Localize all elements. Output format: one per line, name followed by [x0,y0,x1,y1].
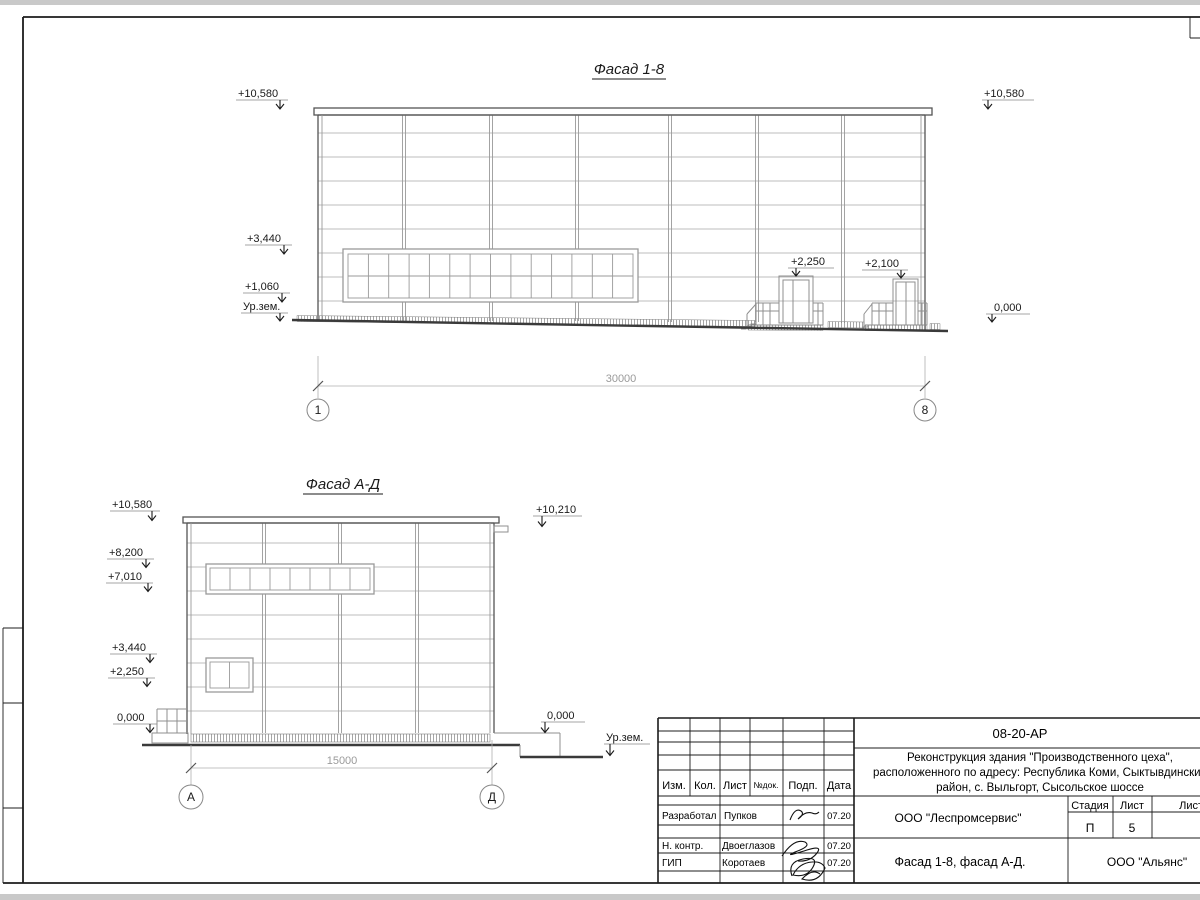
ground-line-1-8 [292,316,948,332]
organization-name: ООО "Леспромсервис" [895,811,1022,825]
level-text: +10,580 [238,88,278,100]
document-code: 08-20-АР [993,726,1048,741]
architectural-drawing: Фасад 1-8 [0,0,1200,900]
facade-1-8-window-band [343,249,638,302]
dimension-text: 15000 [327,755,358,767]
level-mark-0000-right-1-8: 0,000 [986,302,1030,322]
level-mark-ad-ground: Ур.зем. [604,732,650,756]
level-text: Ур.зем. [243,301,280,313]
axis-label-d: Д [488,790,496,804]
level-text: +2,100 [865,258,899,270]
signature-2 [782,841,819,861]
level-text: +2,250 [791,256,825,268]
row3-role: ГИП [662,858,682,869]
roof-pipe [494,526,508,532]
stage-label: Стадия [1071,800,1109,812]
facade-1-8-title: Фасад 1-8 [594,61,665,78]
level-text: +1,060 [245,281,279,293]
level-mark-ad-3440: +3,440 [110,642,157,663]
col-data: Дата [827,780,852,792]
level-text: +2,250 [110,666,144,678]
level-mark-ad-0000-left: 0,000 [113,712,157,733]
axis-label-a: А [187,790,195,804]
row2-role: Н. контр. [662,841,703,852]
row1-role: Разработал [662,810,717,822]
level-mark-ad-2250: +2,250 [108,666,155,687]
level-text: Ур.зем. [606,732,643,744]
signature-3 [791,858,825,880]
dimension-15000: 15000 А Д [179,740,504,809]
contractor-name: ООО "Альянс" [1107,855,1187,869]
level-mark-door-2: +2,100 [862,258,908,278]
title-block: Изм. Кол. Лист №док. Подп. Дата Разработ… [658,718,1200,883]
level-mark-3440: +3,440 [245,233,292,254]
level-mark-ad-7010: +7,010 [106,571,153,592]
axis-label-1: 1 [315,403,322,417]
sheet-label: Лист [1120,800,1144,812]
sheet-title: Фасад 1-8, фасад А-Д. [894,855,1025,869]
level-text: 0,000 [547,710,575,722]
row3-name: Коротаев [722,858,765,869]
level-mark-ad-10580: +10,580 [110,499,160,521]
col-podp: Подп. [788,780,817,792]
level-mark-1060: +1,060 [243,281,290,302]
paper-edge-bottom [0,894,1200,900]
level-text: +3,440 [112,642,146,654]
facade-a-d-title: Фасад А-Д [306,476,381,493]
row1-date: 07.20 [827,811,851,822]
project-description-line1: Реконструкция здания "Производственного … [907,752,1173,764]
level-text: +10,580 [112,499,152,511]
level-mark-10580-right: +10,580 [982,88,1034,109]
entrance-ladder [152,709,188,743]
ground-line-a-d [142,733,603,757]
level-text: +7,010 [108,571,142,583]
row2-name: Двоеглазов [722,841,775,852]
col-kol: Кол. [694,780,716,792]
paper-edge-top [0,0,1200,5]
level-mark-10580-left: +10,580 [236,88,288,109]
project-description-line2: расположенного по адресу: Республика Ком… [873,767,1200,779]
sheets-label: Листов [1179,800,1200,812]
level-mark-ad-8200: +8,200 [107,547,154,568]
level-text: 0,000 [994,302,1022,314]
project-description-line3: район, с. Выльгорт, Сысольское шоссе [936,782,1144,794]
dimension-text: 30000 [606,373,637,385]
col-list: Лист [723,780,747,792]
axis-label-8: 8 [922,403,929,417]
sheet-number: 5 [1129,821,1136,835]
facade-a-d: Фасад А-Д [106,476,650,809]
level-text: +3,440 [247,233,281,245]
level-text: +8,200 [109,547,143,559]
row2-date: 07.20 [827,841,851,852]
stage-value: П [1086,821,1095,835]
dimension-30000: 30000 1 8 [307,356,936,421]
drawing-sheet-page: Фасад 1-8 [0,0,1200,900]
level-text: 0,000 [117,712,145,724]
level-text: +10,580 [984,88,1024,100]
signature-1 [790,810,819,820]
facade-a-d-building [183,517,508,734]
level-mark-door-1: +2,250 [788,256,834,276]
level-mark-ad-10210: +10,210 [533,504,582,527]
facade-1-8: Фасад 1-8 [236,61,1034,421]
entrance-door-2 [858,279,927,331]
row3-date: 07.20 [827,858,851,869]
col-ndok: №док. [754,780,779,790]
col-izm: Изм. [662,780,686,792]
row1-name: Пупков [724,811,757,822]
level-text: +10,210 [536,504,576,516]
level-mark-ground-1-8: Ур.зем. [241,301,288,321]
facade-a-d-small-window [206,658,253,692]
level-mark-ad-0000-right: 0,000 [541,710,585,733]
facade-a-d-window-band [206,564,374,594]
